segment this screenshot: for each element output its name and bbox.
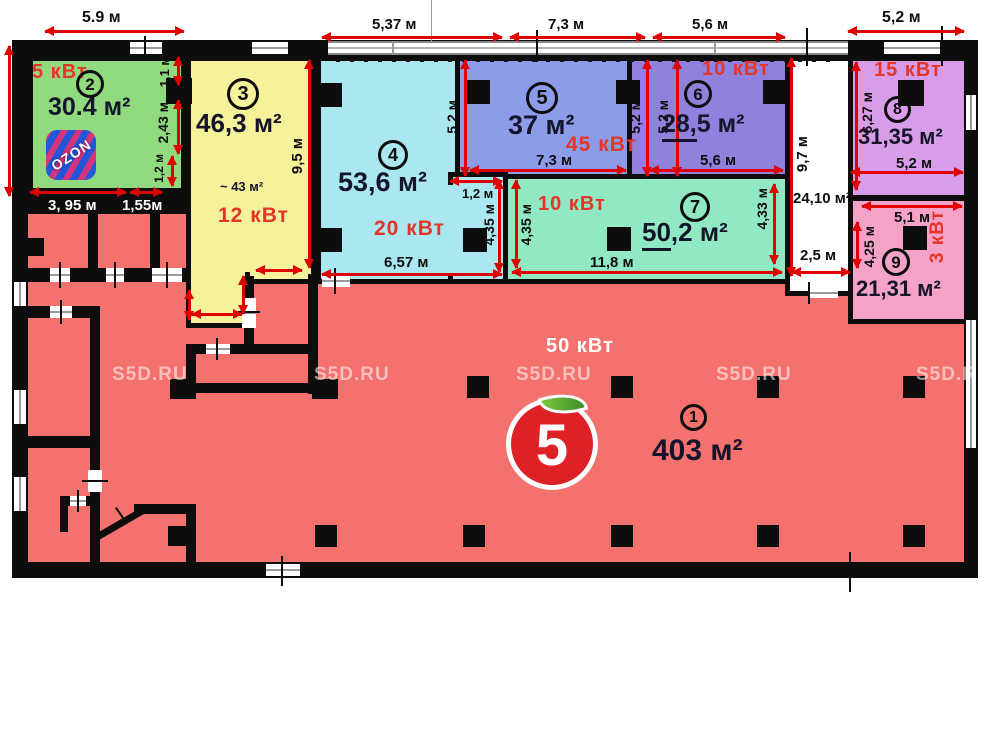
dim-label: 7,3 м: [548, 17, 584, 32]
dimension-arrow: [650, 169, 783, 172]
ozon-logo-icon: OZON: [46, 130, 96, 180]
window: [266, 564, 300, 576]
dimension-arrow: [30, 191, 126, 194]
dimension-arrow: [512, 271, 782, 274]
dimension-arrow: [856, 222, 859, 268]
column: [763, 80, 787, 104]
room-3-area: 46,3 м²: [196, 110, 282, 136]
dim-label: 1,1 м: [158, 56, 171, 87]
dim-label: 9,5 м: [290, 138, 305, 174]
watermark: S5D.RU: [916, 364, 992, 386]
dim-label: 9,7 м: [795, 136, 810, 172]
door-tick: [59, 262, 61, 288]
window: [884, 42, 940, 54]
storefront-window-band: [328, 41, 848, 55]
dimension-arrow: [646, 60, 649, 176]
room-3-power: 12 кВт: [218, 205, 289, 226]
dimension-arrow: [308, 60, 311, 268]
dimension-arrow: [256, 269, 302, 272]
door-tick: [114, 262, 116, 288]
dimension-arrow: [464, 60, 467, 176]
section-tick: [536, 30, 538, 62]
dim-label: 1,2 м: [153, 154, 165, 183]
dimension-arrow: [8, 46, 11, 196]
wall: [60, 496, 68, 532]
area-underlined: 50: [642, 217, 671, 251]
dimension-arrow: [130, 191, 162, 194]
dim-label: 4,35 м: [519, 204, 533, 246]
dim-label: 5,2 м: [445, 100, 459, 134]
door-tick: [808, 282, 810, 304]
door-tick: [166, 262, 168, 288]
room-2-area: 30.4 м²: [48, 95, 130, 120]
column: [318, 83, 342, 107]
wall: [12, 436, 100, 448]
room-6-number: 6: [684, 80, 712, 108]
room-number-text: 8: [893, 102, 902, 118]
room-4-power: 20 кВт: [374, 218, 445, 239]
watermark: S5D.RU: [112, 364, 188, 386]
dim-label: 5,1 м: [894, 210, 930, 225]
area-rest: ,2 м²: [671, 217, 728, 247]
window-divider: [714, 41, 716, 55]
wall: [134, 504, 190, 514]
watermark: S5D.RU: [516, 364, 592, 386]
dimension-arrow: [45, 30, 184, 33]
room-1-number: 1: [680, 404, 707, 431]
dimension-arrow: [470, 169, 626, 172]
section-tick: [849, 552, 851, 592]
dimension-arrow: [177, 100, 180, 154]
dimension-arrow: [188, 290, 191, 320]
door-tick: [60, 300, 62, 324]
door-tick: [216, 338, 218, 360]
dimension-arrow: [171, 156, 174, 186]
room-9-power: 3 кВт: [928, 210, 947, 263]
watermark: S5D.RU: [716, 364, 792, 386]
room-9-area: 21,31 м²: [856, 278, 941, 300]
room-4-area: 53,6 м²: [338, 169, 427, 196]
room-7-power: 10 кВт: [538, 194, 606, 214]
room-number-text: 3: [237, 84, 248, 104]
window: [252, 42, 288, 54]
column: [463, 525, 485, 547]
window: [14, 477, 26, 511]
dimension-arrow: [242, 276, 245, 314]
dimension-arrow: [192, 313, 242, 316]
window: [14, 390, 26, 424]
dim-label: 4,25 м: [862, 226, 876, 268]
dimension-arrow: [322, 273, 502, 276]
window: [14, 278, 26, 308]
dim-label: 2,43 м: [156, 102, 170, 144]
column: [611, 376, 633, 398]
dim-label: 5,6 м: [692, 17, 728, 32]
window-tick: [281, 556, 283, 586]
column: [607, 227, 631, 251]
dim-label: 5.9 м: [82, 10, 121, 26]
column: [611, 525, 633, 547]
outer-wall-bottom: [12, 562, 978, 578]
dimension-arrow: [322, 36, 502, 39]
dimension-arrow: [848, 30, 964, 33]
dim-label: 2,5 м: [800, 248, 836, 263]
room-6-power: 10 кВт: [702, 59, 770, 79]
area-underlined: 28,: [662, 110, 697, 142]
room-6-area: 28,5 м²: [662, 112, 744, 137]
room-number-text: 6: [693, 86, 702, 103]
room-number-text: 5: [536, 88, 547, 108]
window-tick: [144, 36, 146, 60]
floor-plan: 5.9 м 5,37 м 7,3 м 5,6 м 5,2 м 3, 95 м 1…: [0, 0, 1000, 750]
dim-label: 1,2 м: [462, 187, 493, 200]
room-number-text: 4: [388, 146, 398, 164]
room-number-text: 2: [85, 76, 94, 93]
dimension-arrow: [792, 271, 850, 274]
dim-label: 3, 95 м: [48, 198, 97, 213]
window: [966, 95, 976, 130]
dimension-arrow: [773, 184, 776, 264]
room-8-power: 15 кВт: [874, 60, 942, 80]
dimension-arrow: [177, 57, 180, 85]
room-3-join: [191, 272, 245, 314]
column: [318, 228, 342, 252]
dimension-arrow: [510, 36, 645, 39]
room-8-area: 31,35 м²: [858, 126, 943, 148]
room-4-join: [446, 185, 462, 275]
pillar: [168, 526, 188, 546]
column: [467, 376, 489, 398]
room-4-number: 4: [378, 140, 408, 170]
room-3-approx-area: ~ 43 м²: [220, 180, 263, 193]
column: [903, 525, 925, 547]
corridor-area-label: 24,10 м²: [793, 191, 851, 206]
window: [130, 42, 162, 54]
dimension-arrow: [653, 36, 785, 39]
watermark: S5D.RU: [314, 364, 390, 386]
dimension-arrow: [790, 58, 793, 276]
room-number-text: 7: [690, 198, 700, 216]
dim-label: 6,57 м: [384, 255, 428, 270]
room-5-power: 45 кВт: [566, 134, 637, 155]
room-9-number: 9: [882, 248, 910, 276]
dim-label: 4,35 м: [482, 204, 496, 246]
wall: [180, 383, 330, 393]
dim-label: 5,2 м: [628, 100, 642, 134]
column: [466, 80, 490, 104]
door-tick: [334, 268, 336, 294]
dimension-arrow: [498, 180, 501, 272]
room-number-text: 1: [689, 410, 698, 426]
pyaterochka-digit: 5: [536, 417, 568, 475]
pillar: [28, 238, 44, 256]
area-rest: 5 м²: [697, 110, 745, 138]
door-opening: [206, 344, 230, 354]
room-number-text: 9: [891, 254, 900, 271]
dim-label: 1,55м: [122, 198, 162, 213]
dim-label: 5,37 м: [372, 17, 416, 32]
door-opening: [810, 288, 838, 298]
window-divider: [392, 41, 394, 55]
room-1-power: 50 кВт: [546, 336, 614, 356]
room-5-area: 37 м²: [508, 112, 575, 139]
dim-label: 11,8 м: [590, 255, 634, 270]
wall: [90, 308, 100, 562]
ozon-logo-text: OZON: [48, 136, 94, 174]
dimension-arrow: [862, 205, 962, 208]
room-8-number: 8: [884, 96, 911, 123]
section-tick: [806, 28, 808, 66]
column: [315, 525, 337, 547]
column: [757, 525, 779, 547]
dim-label: 5,2 м: [896, 156, 932, 171]
door-tick: [82, 480, 108, 482]
pyaterochka-logo-icon: 5: [506, 394, 602, 490]
door-tick: [77, 490, 79, 512]
dim-label: 5,6 м: [700, 153, 736, 168]
room-3-number: 3: [227, 78, 259, 110]
dim-label: 4,33 м: [755, 188, 769, 230]
room-7-area: 50,2 м²: [642, 219, 728, 245]
room-1-area: 403 м²: [652, 436, 743, 466]
dim-label: 5,2 м: [882, 10, 921, 26]
column: [903, 226, 927, 250]
